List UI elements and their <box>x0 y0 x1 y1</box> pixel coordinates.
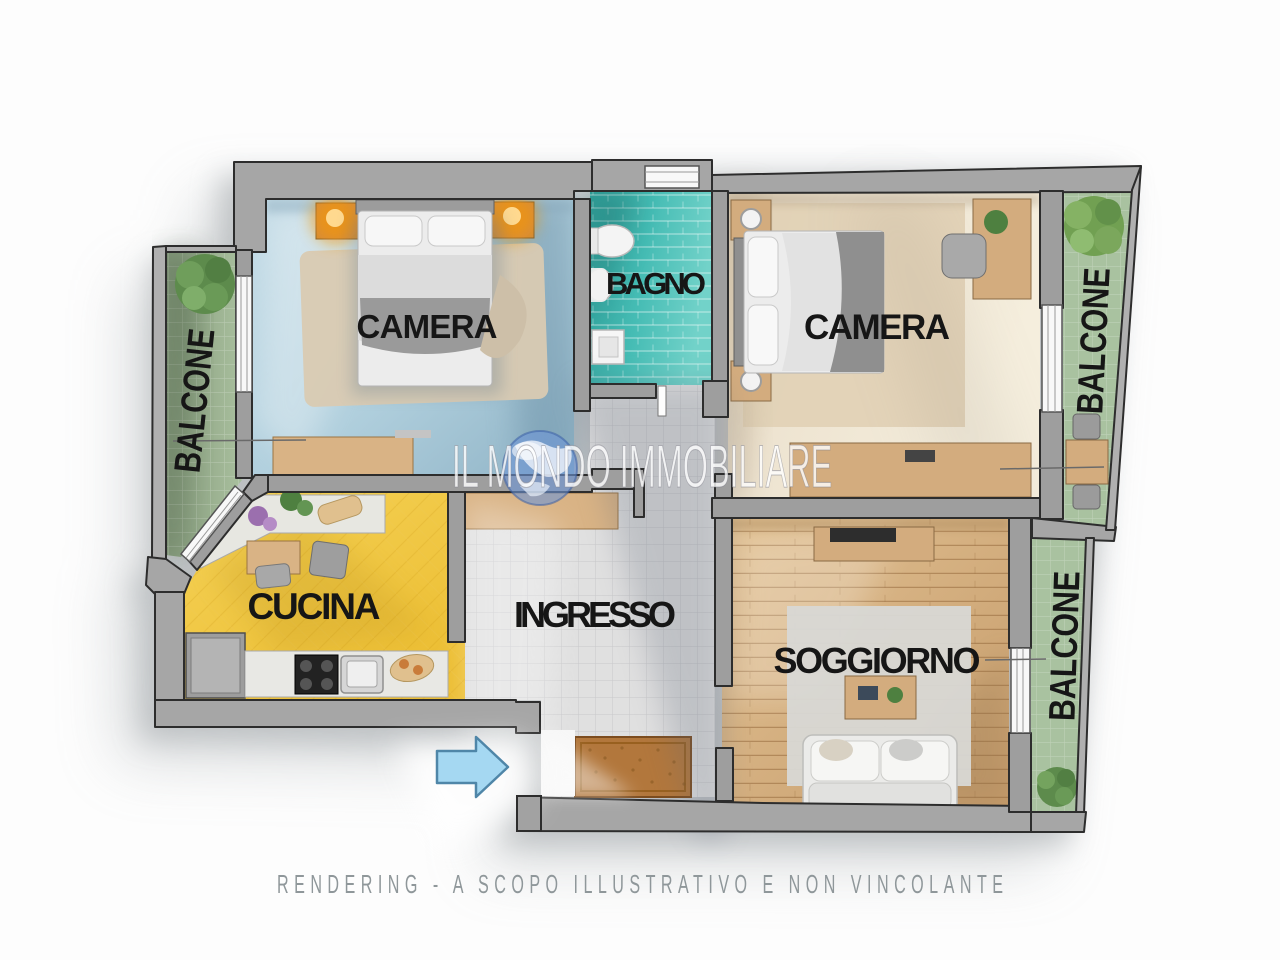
svg-text:CUCINA: CUCINA <box>248 586 381 627</box>
svg-text:BALCONE: BALCONE <box>1042 570 1089 721</box>
svg-text:CAMERA: CAMERA <box>357 308 498 345</box>
svg-text:BAGNO: BAGNO <box>606 266 706 301</box>
svg-text:SOGGIORNO: SOGGIORNO <box>774 640 981 681</box>
svg-text:IL MONDO IMMOBILIARE: IL MONDO IMMOBILIARE <box>452 433 832 500</box>
svg-text:INGRESSO: INGRESSO <box>514 594 676 635</box>
svg-text:CAMERA: CAMERA <box>804 308 950 347</box>
svg-text:BALCONE: BALCONE <box>1070 267 1118 415</box>
